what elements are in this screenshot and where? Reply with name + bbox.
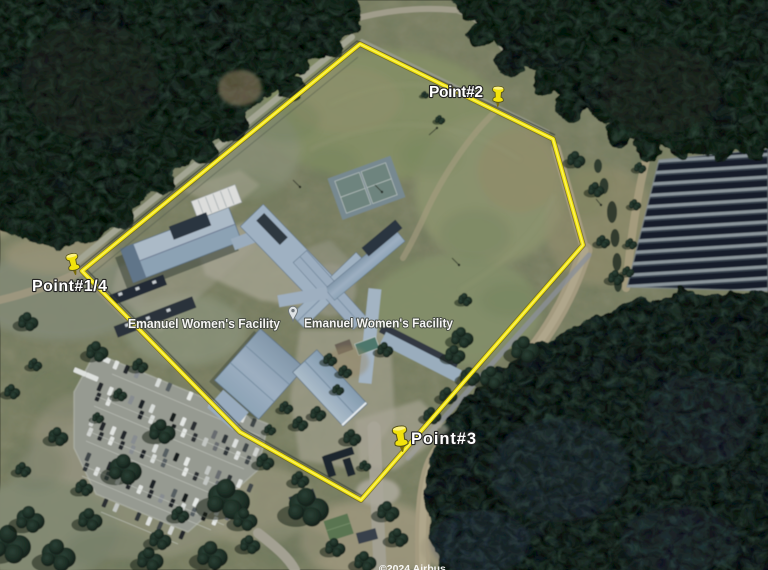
svg-text:Point#2: Point#2	[429, 84, 483, 101]
svg-text:Emanuel Women's Facility: Emanuel Women's Facility	[304, 316, 454, 331]
svg-text:©2024 Airbus: ©2024 Airbus	[379, 563, 446, 570]
svg-text:Point#3: Point#3	[411, 430, 476, 448]
svg-text:Emanuel Women's Facility: Emanuel Women's Facility	[128, 316, 281, 331]
svg-text:Point#1/4: Point#1/4	[32, 278, 107, 295]
